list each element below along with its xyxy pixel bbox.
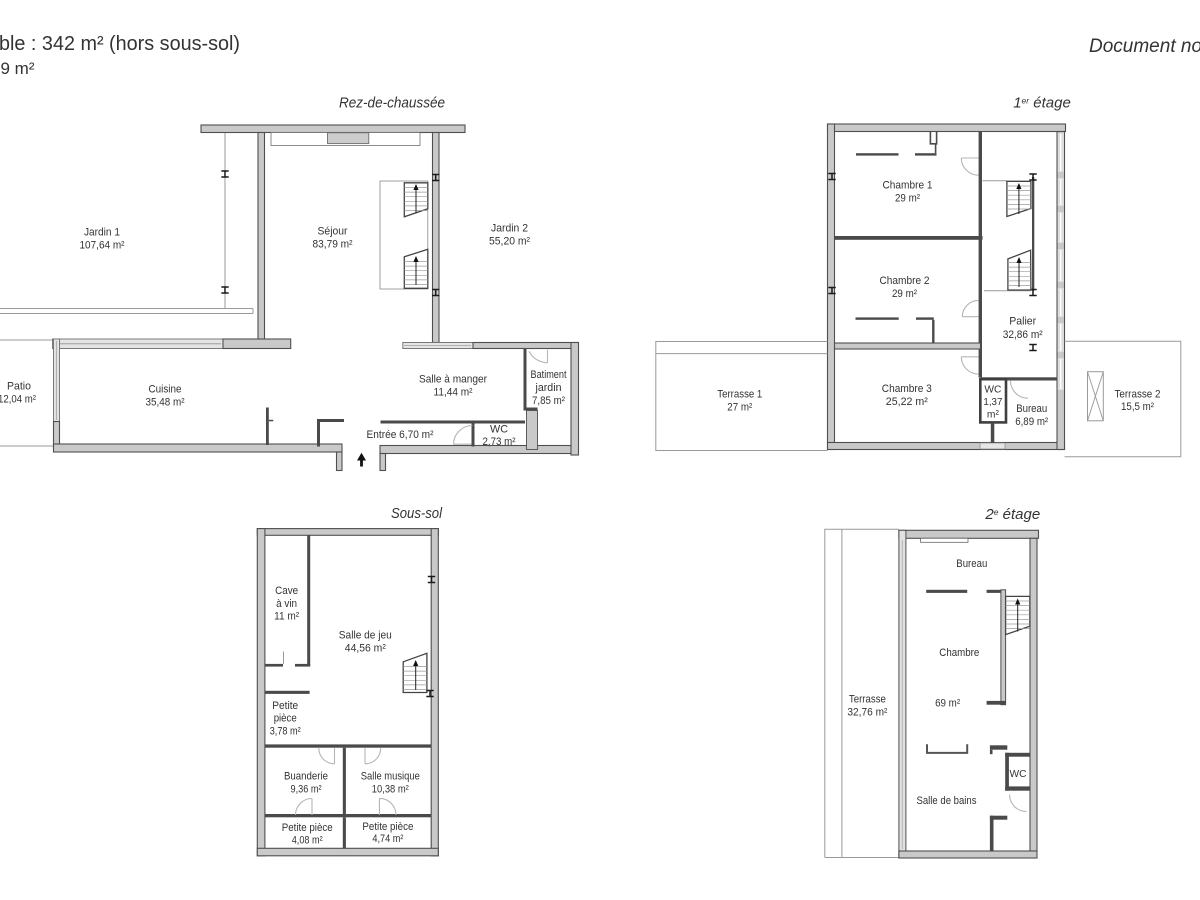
svg-text:Salle musique: Salle musique xyxy=(361,771,420,783)
svg-text:27 m²: 27 m² xyxy=(727,402,752,414)
svg-text:Document non: Document non xyxy=(1089,36,1200,57)
svg-text:Petite: Petite xyxy=(272,700,298,712)
svg-text:2e étage: 2e étage xyxy=(984,506,1040,523)
svg-text:32,86 m²: 32,86 m² xyxy=(1003,329,1043,341)
svg-text:Petite pièce: Petite pièce xyxy=(282,822,333,834)
svg-text:Buanderie: Buanderie xyxy=(284,771,328,783)
svg-text:Petite pièce: Petite pièce xyxy=(362,821,413,833)
svg-text:Cuisine: Cuisine xyxy=(149,384,182,396)
svg-text:à vin: à vin xyxy=(276,598,297,610)
svg-text:Patio: Patio xyxy=(7,381,31,393)
svg-text:Jardin 1: Jardin 1 xyxy=(84,227,120,239)
svg-text:7,85 m²: 7,85 m² xyxy=(532,395,565,407)
svg-text:2,73 m²: 2,73 m² xyxy=(483,436,516,448)
svg-text:Batiment: Batiment xyxy=(531,369,568,381)
svg-text:ble : 342 m² (hors sous-sol): ble : 342 m² (hors sous-sol) xyxy=(0,33,240,55)
svg-text:69 m²: 69 m² xyxy=(935,698,960,710)
svg-text:Chambre 2: Chambre 2 xyxy=(880,275,930,287)
svg-text:Chambre 3: Chambre 3 xyxy=(882,383,932,395)
svg-text:4,08 m²: 4,08 m² xyxy=(292,835,323,847)
svg-text:25,22 m²: 25,22 m² xyxy=(886,396,928,408)
svg-text:10,38 m²: 10,38 m² xyxy=(372,784,409,796)
svg-text:Chambre 1: Chambre 1 xyxy=(883,180,933,192)
svg-text:Jardin 2: Jardin 2 xyxy=(491,223,528,235)
svg-text:Cave: Cave xyxy=(275,585,298,597)
svg-text:11,44 m²: 11,44 m² xyxy=(434,387,473,399)
svg-text:Chambre: Chambre xyxy=(939,647,979,659)
svg-text:Salle de jeu: Salle de jeu xyxy=(339,630,392,642)
svg-text:Rez-de-chaussée: Rez-de-chaussée xyxy=(339,95,445,112)
svg-text:WC: WC xyxy=(1010,768,1027,780)
svg-text:Palier: Palier xyxy=(1009,316,1036,328)
svg-text:9 m²: 9 m² xyxy=(1,60,36,78)
svg-text:Terrasse 2: Terrasse 2 xyxy=(1115,389,1161,401)
svg-text:3,78 m²: 3,78 m² xyxy=(270,726,301,738)
svg-text:32,76 m²: 32,76 m² xyxy=(847,707,887,719)
svg-text:Sous-sol: Sous-sol xyxy=(391,505,443,522)
svg-text:Bureau: Bureau xyxy=(956,558,987,570)
svg-text:Séjour: Séjour xyxy=(318,226,348,238)
svg-text:1er étage: 1er étage xyxy=(1013,95,1071,112)
svg-text:6,89 m²: 6,89 m² xyxy=(1015,416,1048,428)
svg-text:11 m²: 11 m² xyxy=(274,611,299,623)
svg-text:29 m²: 29 m² xyxy=(895,193,920,205)
svg-text:1,37: 1,37 xyxy=(983,396,1002,408)
svg-text:Terrasse: Terrasse xyxy=(849,694,886,706)
svg-text:12,04 m²: 12,04 m² xyxy=(0,394,36,406)
svg-text:WC: WC xyxy=(984,384,1001,396)
svg-text:m²: m² xyxy=(987,409,999,421)
svg-text:29 m²: 29 m² xyxy=(892,288,917,300)
svg-text:WC: WC xyxy=(490,424,508,436)
svg-text:9,36 m²: 9,36 m² xyxy=(291,784,322,796)
svg-text:jardin: jardin xyxy=(535,382,562,394)
svg-text:35,48 m²: 35,48 m² xyxy=(146,397,185,409)
svg-text:44,56 m²: 44,56 m² xyxy=(345,643,386,655)
svg-text:Terrasse 1: Terrasse 1 xyxy=(717,389,762,401)
svg-text:Salle de bains: Salle de bains xyxy=(917,795,977,807)
svg-text:Entrée 6,70 m²: Entrée 6,70 m² xyxy=(367,429,434,441)
svg-text:15,5 m²: 15,5 m² xyxy=(1121,401,1154,413)
svg-text:107,64 m²: 107,64 m² xyxy=(80,240,125,252)
svg-text:Salle à manger: Salle à manger xyxy=(419,374,487,386)
svg-text:Bureau: Bureau xyxy=(1016,403,1047,415)
svg-text:55,20 m²: 55,20 m² xyxy=(489,236,530,248)
svg-text:4,74 m²: 4,74 m² xyxy=(372,833,403,845)
svg-text:pièce: pièce xyxy=(274,713,297,725)
svg-text:83,79 m²: 83,79 m² xyxy=(313,239,353,251)
